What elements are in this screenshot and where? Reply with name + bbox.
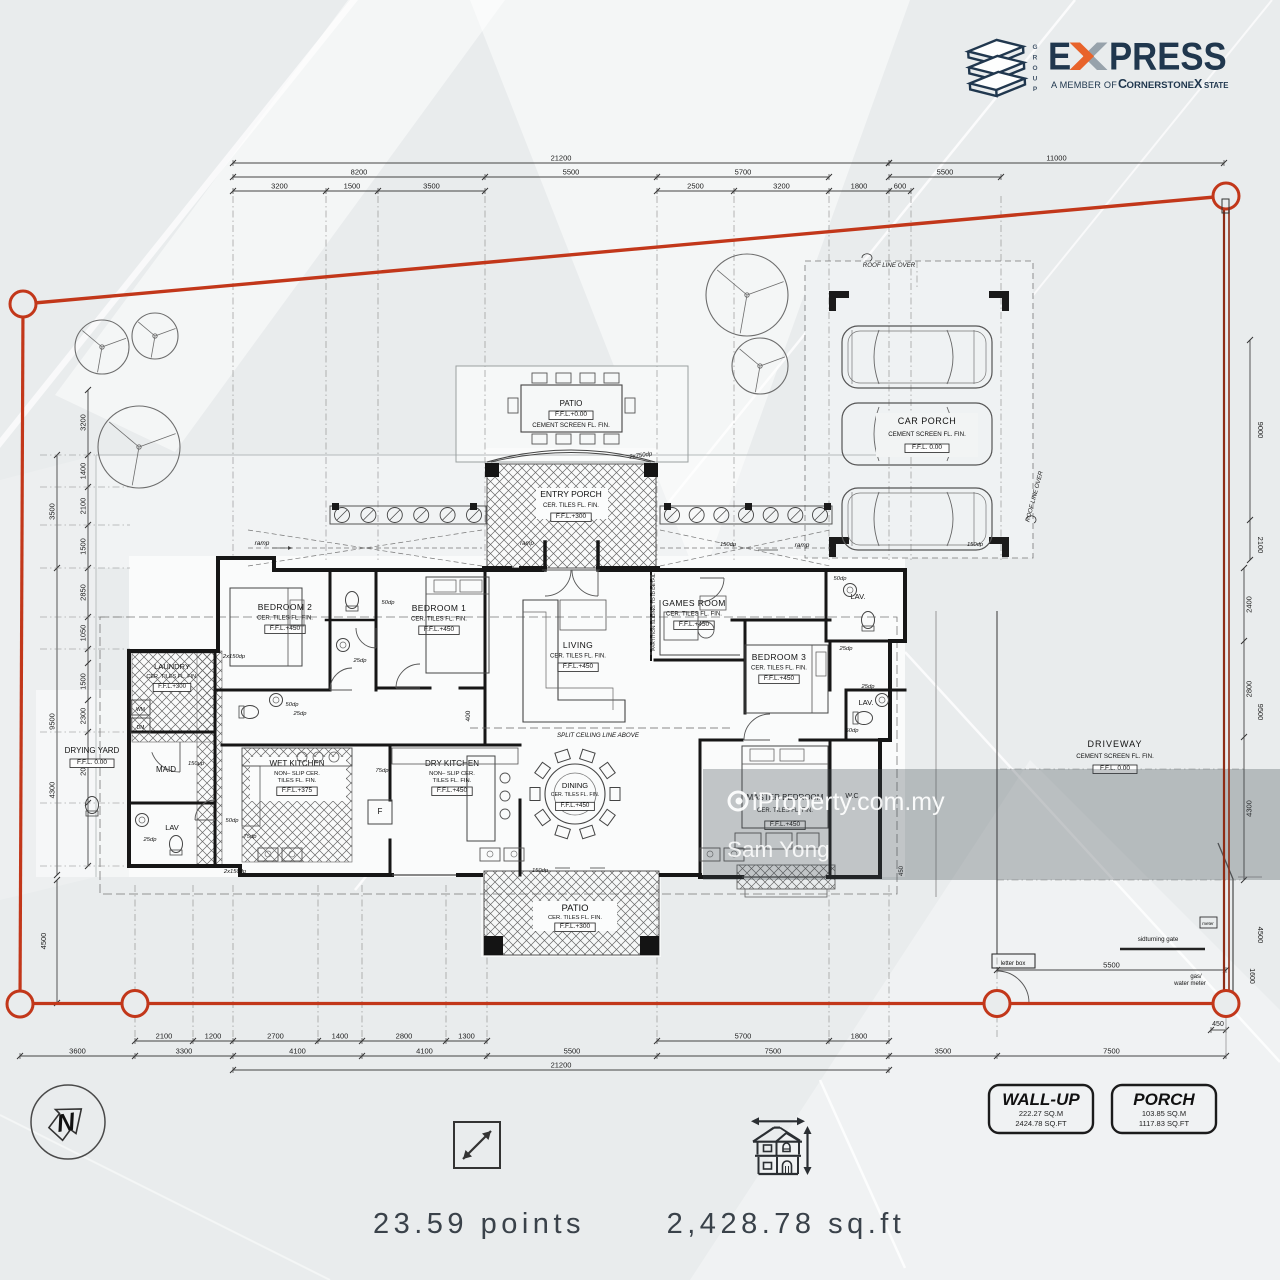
- svg-text:letter box: letter box: [1001, 961, 1026, 967]
- svg-text:F.F.L.+375: F.F.L.+375: [282, 787, 313, 794]
- svg-text:11000: 11000: [1046, 154, 1066, 163]
- svg-text:DRY KITCHEN: DRY KITCHEN: [425, 759, 479, 768]
- svg-text:1800: 1800: [851, 182, 868, 191]
- svg-text:BEDROOM 3: BEDROOM 3: [752, 652, 807, 662]
- svg-text:2300: 2300: [79, 708, 88, 725]
- svg-text:DINING: DINING: [562, 781, 588, 790]
- svg-text:1500: 1500: [344, 182, 361, 191]
- svg-text:2x150dp: 2x150dp: [223, 869, 247, 875]
- svg-text:F.F.L.+450: F.F.L.+450: [764, 675, 795, 682]
- svg-text:2800: 2800: [1245, 681, 1254, 698]
- svg-text:F.F.L. 0.00: F.F.L. 0.00: [912, 444, 942, 451]
- svg-text:2424.78 SQ.FT: 2424.78 SQ.FT: [1015, 1119, 1067, 1128]
- svg-text:4500: 4500: [39, 933, 48, 950]
- svg-text:SPLIT CEILING LINE ABOVE: SPLIT CEILING LINE ABOVE: [557, 732, 640, 739]
- svg-text:CER. TILES FL. FIN.: CER. TILES FL. FIN.: [548, 915, 602, 921]
- svg-text:ROOF LINE OVER: ROOF LINE OVER: [863, 262, 916, 269]
- svg-text:WALL-UP: WALL-UP: [1002, 1090, 1080, 1109]
- svg-text:4500: 4500: [1256, 927, 1265, 944]
- svg-text:4100: 4100: [289, 1047, 306, 1056]
- svg-text:PARTITION SLIDING TO ID DETAIL: PARTITION SLIDING TO ID DETAIL: [651, 573, 657, 651]
- svg-text:8200: 8200: [351, 168, 368, 177]
- svg-text:G: G: [1032, 44, 1037, 51]
- svg-text:WET KITCHEN: WET KITCHEN: [270, 759, 325, 768]
- svg-text:150dp: 150dp: [720, 542, 737, 548]
- svg-text:25dp: 25dp: [861, 684, 876, 690]
- svg-text:1500: 1500: [79, 538, 88, 555]
- svg-text:F.F.L.+450: F.F.L.+450: [561, 802, 590, 809]
- svg-text:CEMENT SCREEN FL. FIN.: CEMENT SCREEN FL. FIN.: [532, 422, 610, 429]
- svg-text:3200: 3200: [271, 182, 288, 191]
- svg-text:25dp: 25dp: [143, 837, 158, 843]
- svg-text:DM: DM: [137, 725, 145, 731]
- svg-text:9000: 9000: [1256, 422, 1265, 439]
- svg-text:7500: 7500: [765, 1047, 782, 1056]
- svg-text:F: F: [378, 807, 383, 816]
- svg-text:sidturning gate: sidturning gate: [1138, 936, 1179, 943]
- svg-text:TILES FL. FIN.: TILES FL. FIN.: [278, 778, 317, 784]
- svg-text:NON– SLIP CER.: NON– SLIP CER.: [429, 771, 475, 777]
- svg-text:LAUNDRY: LAUNDRY: [154, 662, 190, 671]
- svg-text:CER. TILES FL. FIN.: CER. TILES FL. FIN.: [751, 666, 807, 672]
- svg-text:F.F.L.+450: F.F.L.+450: [563, 663, 594, 670]
- svg-text:3600: 3600: [69, 1047, 86, 1056]
- svg-text:2400: 2400: [1245, 596, 1254, 613]
- svg-text:STATE: STATE: [1204, 81, 1228, 90]
- svg-text:MAID: MAID: [156, 765, 176, 774]
- svg-text:1050: 1050: [79, 625, 88, 642]
- svg-text:1400: 1400: [79, 463, 88, 480]
- svg-text:2x150dp: 2x150dp: [222, 654, 246, 660]
- svg-text:3500: 3500: [423, 182, 440, 191]
- svg-text:O: O: [1032, 65, 1037, 72]
- svg-text:Sam Yong: Sam Yong: [727, 837, 830, 862]
- svg-text:5500: 5500: [564, 1047, 581, 1056]
- svg-text:X: X: [1194, 77, 1203, 91]
- svg-text:CAR PORCH: CAR PORCH: [898, 416, 957, 426]
- svg-text:5500: 5500: [563, 168, 580, 177]
- svg-text:2100: 2100: [79, 498, 88, 515]
- svg-text:CER. TILES FL. FIN.: CER. TILES FL. FIN.: [411, 617, 467, 623]
- svg-text:50dp: 50dp: [382, 600, 396, 606]
- svg-text:25dp: 25dp: [353, 658, 368, 664]
- svg-text:BEDROOM 1: BEDROOM 1: [412, 603, 467, 613]
- svg-text:150dp: 150dp: [967, 542, 984, 548]
- svg-text:23.59 points: 23.59 points: [373, 1208, 585, 1240]
- svg-text:7500: 7500: [1103, 1047, 1120, 1056]
- svg-text:21200: 21200: [551, 154, 572, 163]
- svg-text:9500: 9500: [48, 713, 57, 730]
- svg-text:50dp: 50dp: [226, 818, 240, 824]
- svg-text:2850: 2850: [79, 584, 88, 601]
- svg-text:F.F.L. 0.00: F.F.L. 0.00: [77, 759, 107, 766]
- svg-text:LAV: LAV: [165, 823, 179, 832]
- svg-text:1117.83 SQ.FT: 1117.83 SQ.FT: [1139, 1119, 1190, 1128]
- svg-text:3200: 3200: [79, 414, 88, 431]
- svg-text:5500: 5500: [1103, 961, 1120, 970]
- svg-text:1300: 1300: [458, 1032, 475, 1041]
- svg-text:F.F.L.+450: F.F.L.+450: [437, 787, 468, 794]
- svg-text:R: R: [1033, 55, 1038, 62]
- svg-text:CEMENT SCREEN FL. FIN.: CEMENT SCREEN FL. FIN.: [1076, 753, 1154, 760]
- svg-text:75dp: 75dp: [244, 834, 258, 840]
- svg-text:50dp: 50dp: [834, 576, 848, 582]
- svg-text:4100: 4100: [416, 1047, 433, 1056]
- svg-text:A MEMBER OF: A MEMBER OF: [1051, 80, 1117, 90]
- svg-text:LAV.: LAV.: [850, 592, 865, 601]
- svg-text:2800: 2800: [396, 1032, 413, 1041]
- svg-text:DRIVEWAY: DRIVEWAY: [1087, 739, 1142, 749]
- svg-text:1600: 1600: [1248, 968, 1255, 984]
- svg-text:F.F.L.+300: F.F.L.+300: [560, 923, 591, 930]
- svg-text:NON– SLIP CER.: NON– SLIP CER.: [274, 771, 320, 777]
- svg-text:CER. TILES FL. FIN.: CER. TILES FL. FIN.: [257, 616, 313, 622]
- svg-text:WM: WM: [136, 707, 145, 713]
- svg-text:2100: 2100: [156, 1032, 173, 1041]
- svg-text:50dp: 50dp: [286, 702, 300, 708]
- svg-text:ramp: ramp: [255, 540, 270, 547]
- svg-text:P: P: [1033, 86, 1038, 93]
- svg-text:ramp: ramp: [520, 541, 534, 547]
- svg-text:2500: 2500: [687, 182, 704, 191]
- svg-text:3500: 3500: [935, 1047, 952, 1056]
- svg-text:DRYING YARD: DRYING YARD: [65, 746, 120, 755]
- svg-text:25dp: 25dp: [293, 711, 308, 717]
- svg-text:103.85 SQ.M: 103.85 SQ.M: [1142, 1109, 1186, 1118]
- svg-text:1400: 1400: [332, 1032, 349, 1041]
- svg-text:5700: 5700: [735, 168, 752, 177]
- svg-text:3200: 3200: [773, 182, 790, 191]
- svg-text:U: U: [1033, 76, 1038, 83]
- svg-text:GAMES ROOM: GAMES ROOM: [662, 598, 726, 608]
- svg-text:50dp: 50dp: [846, 728, 860, 734]
- svg-text:1200: 1200: [205, 1032, 222, 1041]
- svg-text:5500: 5500: [937, 168, 954, 177]
- svg-text:1800: 1800: [851, 1032, 868, 1041]
- svg-text:PORCH: PORCH: [1133, 1090, 1195, 1109]
- svg-text:TILES FL. FIN.: TILES FL. FIN.: [433, 778, 472, 784]
- svg-text:150up: 150up: [188, 761, 205, 767]
- svg-text:PRESS: PRESS: [1109, 35, 1227, 78]
- svg-text:450: 450: [1212, 1021, 1224, 1028]
- svg-text:5700: 5700: [735, 1032, 752, 1041]
- svg-text:iProperty.com.my: iProperty.com.my: [752, 788, 945, 816]
- svg-text:21200: 21200: [551, 1061, 572, 1070]
- svg-text:CEMENT SCREEN FL. FIN.: CEMENT SCREEN FL. FIN.: [888, 431, 966, 438]
- svg-text:meter: meter: [1202, 921, 1214, 926]
- svg-text:2100: 2100: [1256, 537, 1265, 554]
- svg-text:3500: 3500: [48, 503, 57, 520]
- svg-text:400: 400: [465, 710, 472, 721]
- svg-text:1500: 1500: [79, 673, 88, 690]
- svg-text:25dp: 25dp: [839, 646, 854, 652]
- svg-text:F.F.L.+300: F.F.L.+300: [556, 513, 587, 520]
- svg-text:water meter: water meter: [1173, 981, 1206, 987]
- svg-text:LIVING: LIVING: [563, 640, 593, 650]
- svg-text:2700: 2700: [267, 1032, 284, 1041]
- svg-text:ORNERSTONE: ORNERSTONE: [1127, 80, 1195, 91]
- svg-text:E: E: [1048, 35, 1071, 78]
- svg-text:ENTRY PORCH: ENTRY PORCH: [540, 489, 602, 499]
- svg-text:LAV.: LAV.: [858, 698, 873, 707]
- svg-text:PATIO: PATIO: [560, 399, 583, 408]
- svg-text:F.F.L.+0.00: F.F.L.+0.00: [555, 411, 587, 418]
- svg-text:2,428.78 sq.ft: 2,428.78 sq.ft: [667, 1208, 906, 1240]
- svg-text:F.F.L.+450: F.F.L.+450: [424, 626, 455, 633]
- svg-text:CER. TILES FL. FIN.: CER. TILES FL. FIN.: [543, 503, 599, 509]
- svg-text:CER. TILES FL. FIN.: CER. TILES FL. FIN.: [551, 792, 599, 798]
- svg-text:F.F.L.+300: F.F.L.+300: [158, 684, 187, 690]
- svg-text:PATIO: PATIO: [561, 903, 588, 914]
- svg-text:3300: 3300: [176, 1047, 193, 1056]
- svg-text:600: 600: [894, 182, 907, 191]
- svg-text:CER. TILES FL. FIN.: CER. TILES FL. FIN.: [146, 674, 198, 680]
- svg-text:75dp: 75dp: [376, 768, 390, 774]
- svg-text:gas/: gas/: [1190, 974, 1202, 980]
- svg-text:ramp: ramp: [795, 542, 810, 549]
- svg-text:4300: 4300: [48, 782, 57, 799]
- svg-text:222.27 SQ.M: 222.27 SQ.M: [1019, 1109, 1063, 1118]
- svg-text:9500: 9500: [1256, 704, 1265, 721]
- svg-text:150dp: 150dp: [532, 868, 549, 874]
